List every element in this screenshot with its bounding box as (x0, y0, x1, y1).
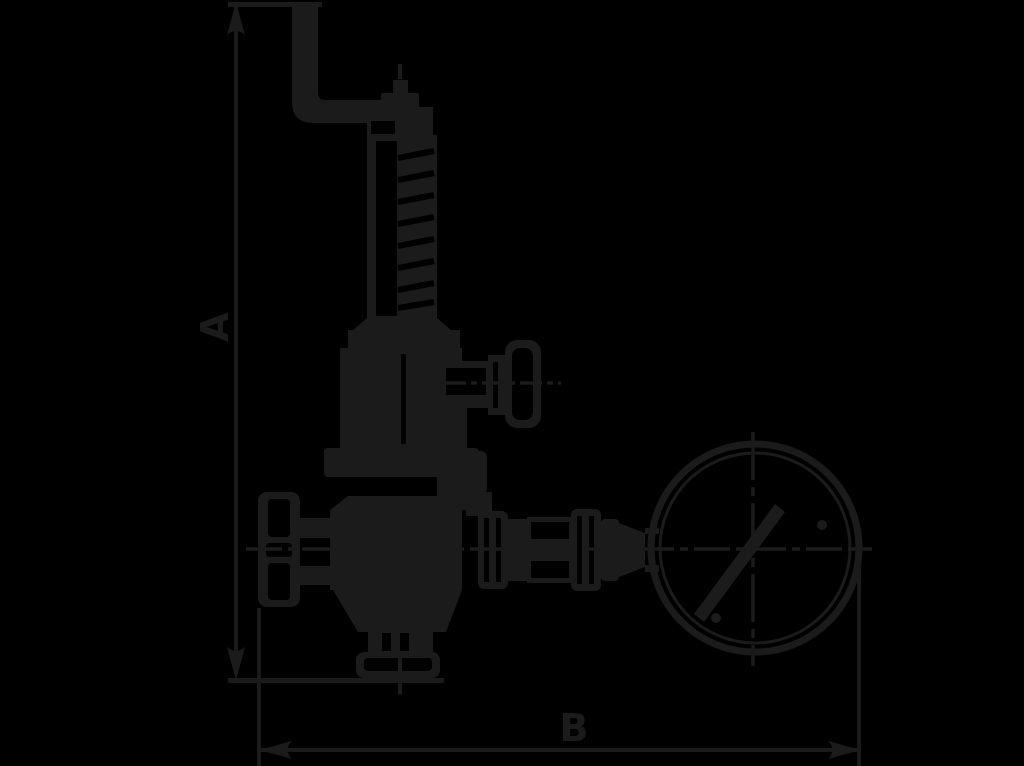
gauge-dial-dot-right (817, 520, 827, 530)
dimension-b-label: B (560, 706, 589, 750)
gauge-dial-dot-left (711, 613, 721, 623)
spring-housing (348, 135, 460, 349)
upper-body (324, 340, 541, 516)
dimension-b-arrow-left-icon (259, 741, 292, 759)
gauge-needle (694, 504, 785, 622)
dimension-b-right-extension-line (857, 552, 861, 766)
dimension-b-left-extension-line (257, 608, 261, 766)
drawing-canvas: A B (0, 0, 1024, 766)
lower-body (258, 492, 462, 694)
body-flange (324, 448, 479, 477)
dimension-a-label: A (193, 312, 237, 342)
dimension-b-arrow-right-icon (828, 741, 861, 759)
dimension-a-arrow-down-icon (227, 647, 245, 680)
valve-technical-drawing: A B (0, 0, 1024, 766)
